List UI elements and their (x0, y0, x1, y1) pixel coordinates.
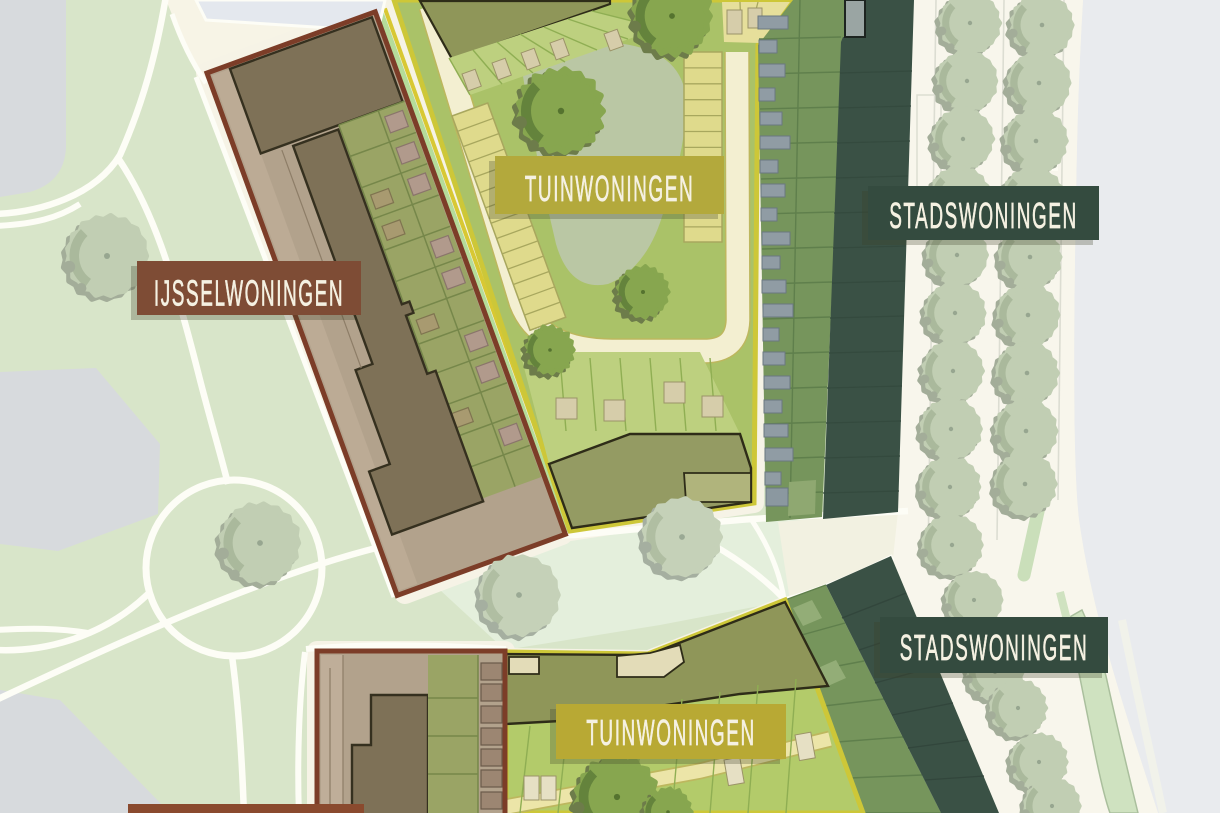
svg-text:STADSWONINGEN: STADSWONINGEN (889, 196, 1078, 236)
svg-text:IJSSELWONINGEN: IJSSELWONINGEN (154, 274, 344, 314)
svg-text:STADSWONINGEN: STADSWONINGEN (900, 628, 1089, 668)
svg-text:TUINWONINGEN: TUINWONINGEN (525, 169, 694, 209)
svg-text:TUINWONINGEN: TUINWONINGEN (586, 713, 755, 753)
